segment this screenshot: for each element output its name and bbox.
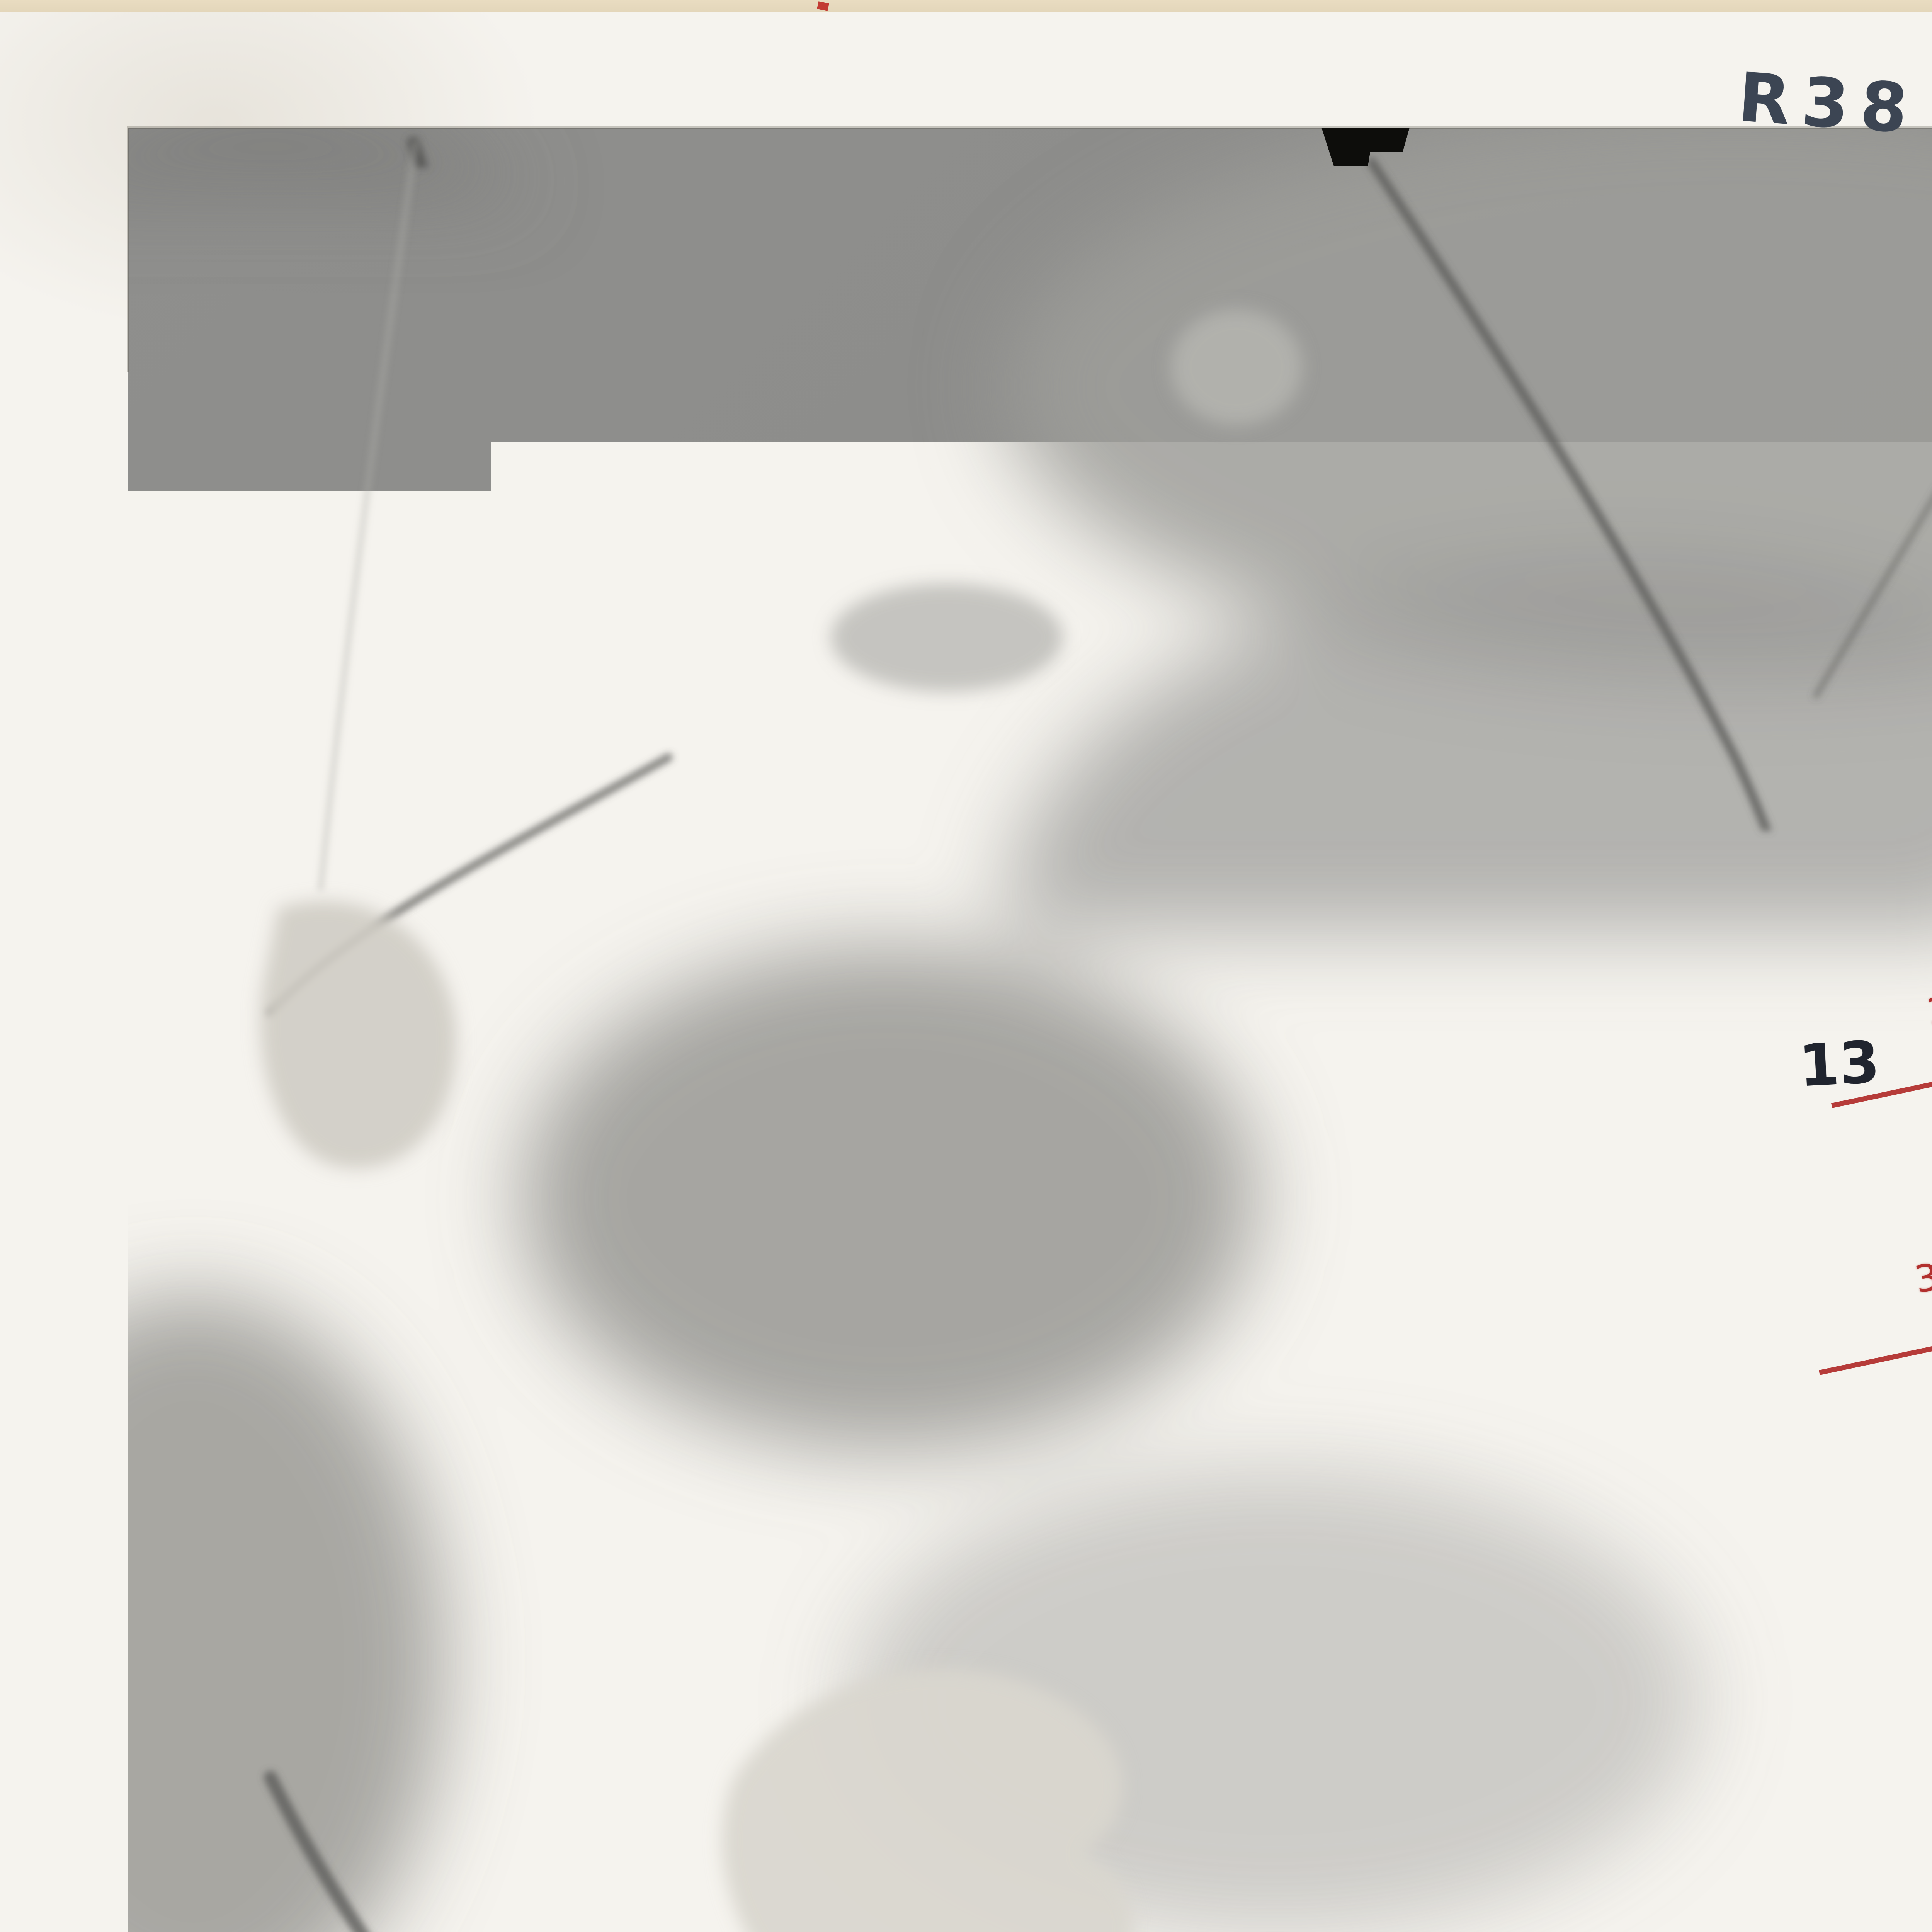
boundary-west	[1390, 627, 1392, 1932]
section-number-13: 13	[1798, 1033, 1881, 1095]
range-label: R38	[1736, 64, 1921, 144]
album-page: CC1 302 133 R38 T-8 CC1-3KK-73 1-14-69 T…	[0, 0, 1932, 1932]
aerial-photo-graphics	[0, 0, 1932, 1932]
boundary-155a-west	[1905, 618, 1906, 1078]
aerial-photo-texture	[0, 97, 1932, 1932]
film-roll-id-label: CC1-3KK-73	[216, 598, 266, 960]
